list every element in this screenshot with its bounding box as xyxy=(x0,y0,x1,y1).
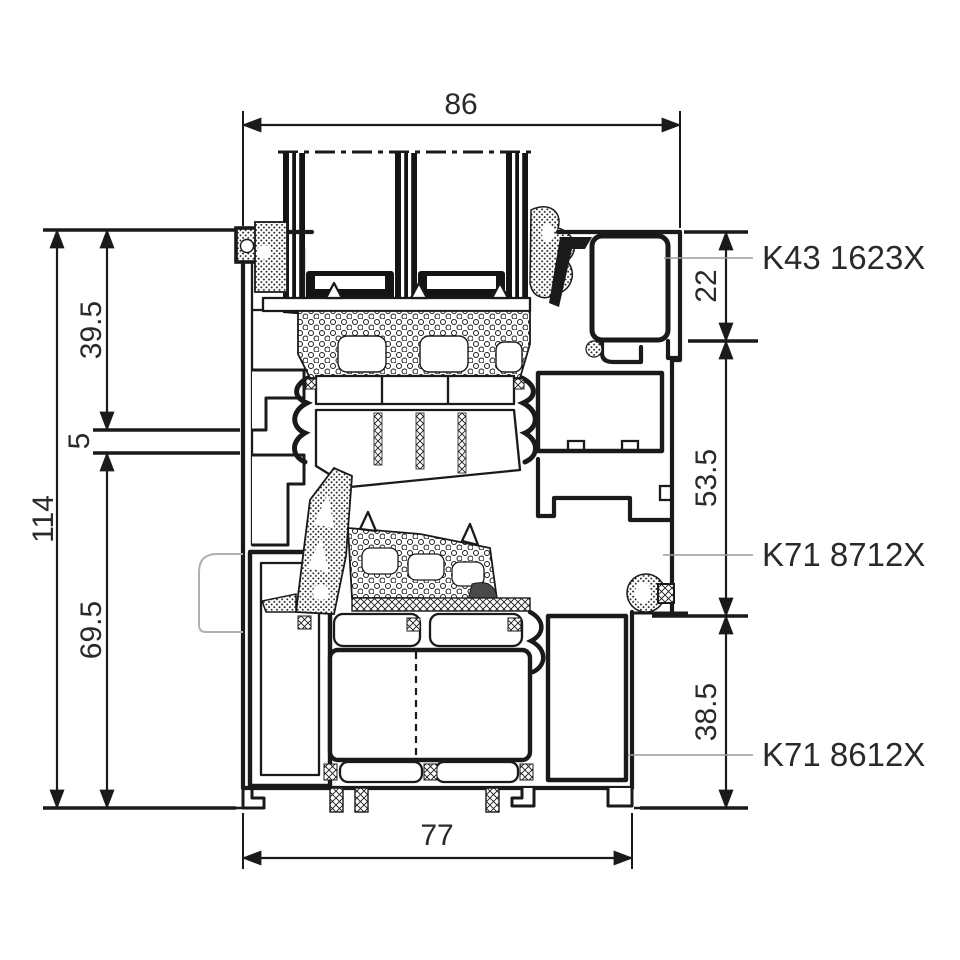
part-label-frame: K71 8712X xyxy=(762,536,925,573)
threshold-right-chamber xyxy=(548,616,626,780)
label-frame: K71 8712X xyxy=(663,536,925,573)
dim-lower-left-value: 69.5 xyxy=(75,601,108,659)
gasket-glass-left xyxy=(255,222,287,292)
threshold-foot-hatched-1 xyxy=(330,788,343,812)
dimension-lower-left: 69.5 xyxy=(75,453,108,808)
dim-right-top-value: 22 xyxy=(690,269,723,302)
gasket-glass-right xyxy=(530,207,592,307)
dim-right-bottom-value: 38.5 xyxy=(690,683,723,741)
dimension-bottom-width: 77 xyxy=(243,813,632,869)
dim-right-middle-value: 53.5 xyxy=(690,449,723,507)
technical-drawing-canvas: 86 77 114 39.5 5 69.5 22 53.5 38.5 xyxy=(0,0,960,960)
dim-bottom-width-value: 77 xyxy=(420,819,453,852)
foam-insulation-upper xyxy=(263,283,530,378)
label-threshold: K71 8612X xyxy=(628,736,925,773)
dimension-right-top: 22 xyxy=(684,232,758,341)
foam-bar xyxy=(348,512,497,605)
threshold-main-chamber xyxy=(330,650,530,760)
dimension-right-bottom: 38.5 xyxy=(640,616,748,808)
rivet-circle xyxy=(241,240,254,253)
threshold-foot-right xyxy=(608,788,632,806)
dimension-gap: 5 xyxy=(63,430,240,453)
right-frame-chamber xyxy=(538,373,662,451)
dim-gap-value: 5 xyxy=(63,433,96,450)
frame-chamber-mid xyxy=(252,455,304,545)
glazing-bead-profile xyxy=(586,236,679,362)
glass-pane-middle xyxy=(395,153,417,303)
dimension-right-middle: 53.5 xyxy=(652,341,748,616)
part-label-glazing-bead: K43 1623X xyxy=(762,239,925,276)
dimension-overall-height: 114 xyxy=(27,230,236,808)
dimension-upper-left: 39.5 xyxy=(75,230,108,430)
frame-foot-left xyxy=(243,788,264,808)
sash-profile xyxy=(295,376,536,487)
right-frame-steps xyxy=(538,459,672,520)
profile-cross-section-drawing: 86 77 114 39.5 5 69.5 22 53.5 38.5 xyxy=(0,0,960,960)
dimension-top-width: 86 xyxy=(243,88,680,228)
glazing-bridge xyxy=(263,298,530,311)
threshold-foot-hatched-3 xyxy=(486,788,499,812)
dim-upper-left-value: 39.5 xyxy=(75,301,108,359)
threshold-foot-hook xyxy=(512,788,534,806)
sash-sidewall-right xyxy=(522,378,536,462)
part-label-threshold: K71 8612X xyxy=(762,736,925,773)
threshold-foot-hatched-2 xyxy=(355,788,368,812)
glass-pane-right xyxy=(506,153,528,303)
handle-outline xyxy=(199,554,243,632)
dim-overall-height-value: 114 xyxy=(27,495,60,543)
dim-top-width-value: 86 xyxy=(444,88,477,121)
